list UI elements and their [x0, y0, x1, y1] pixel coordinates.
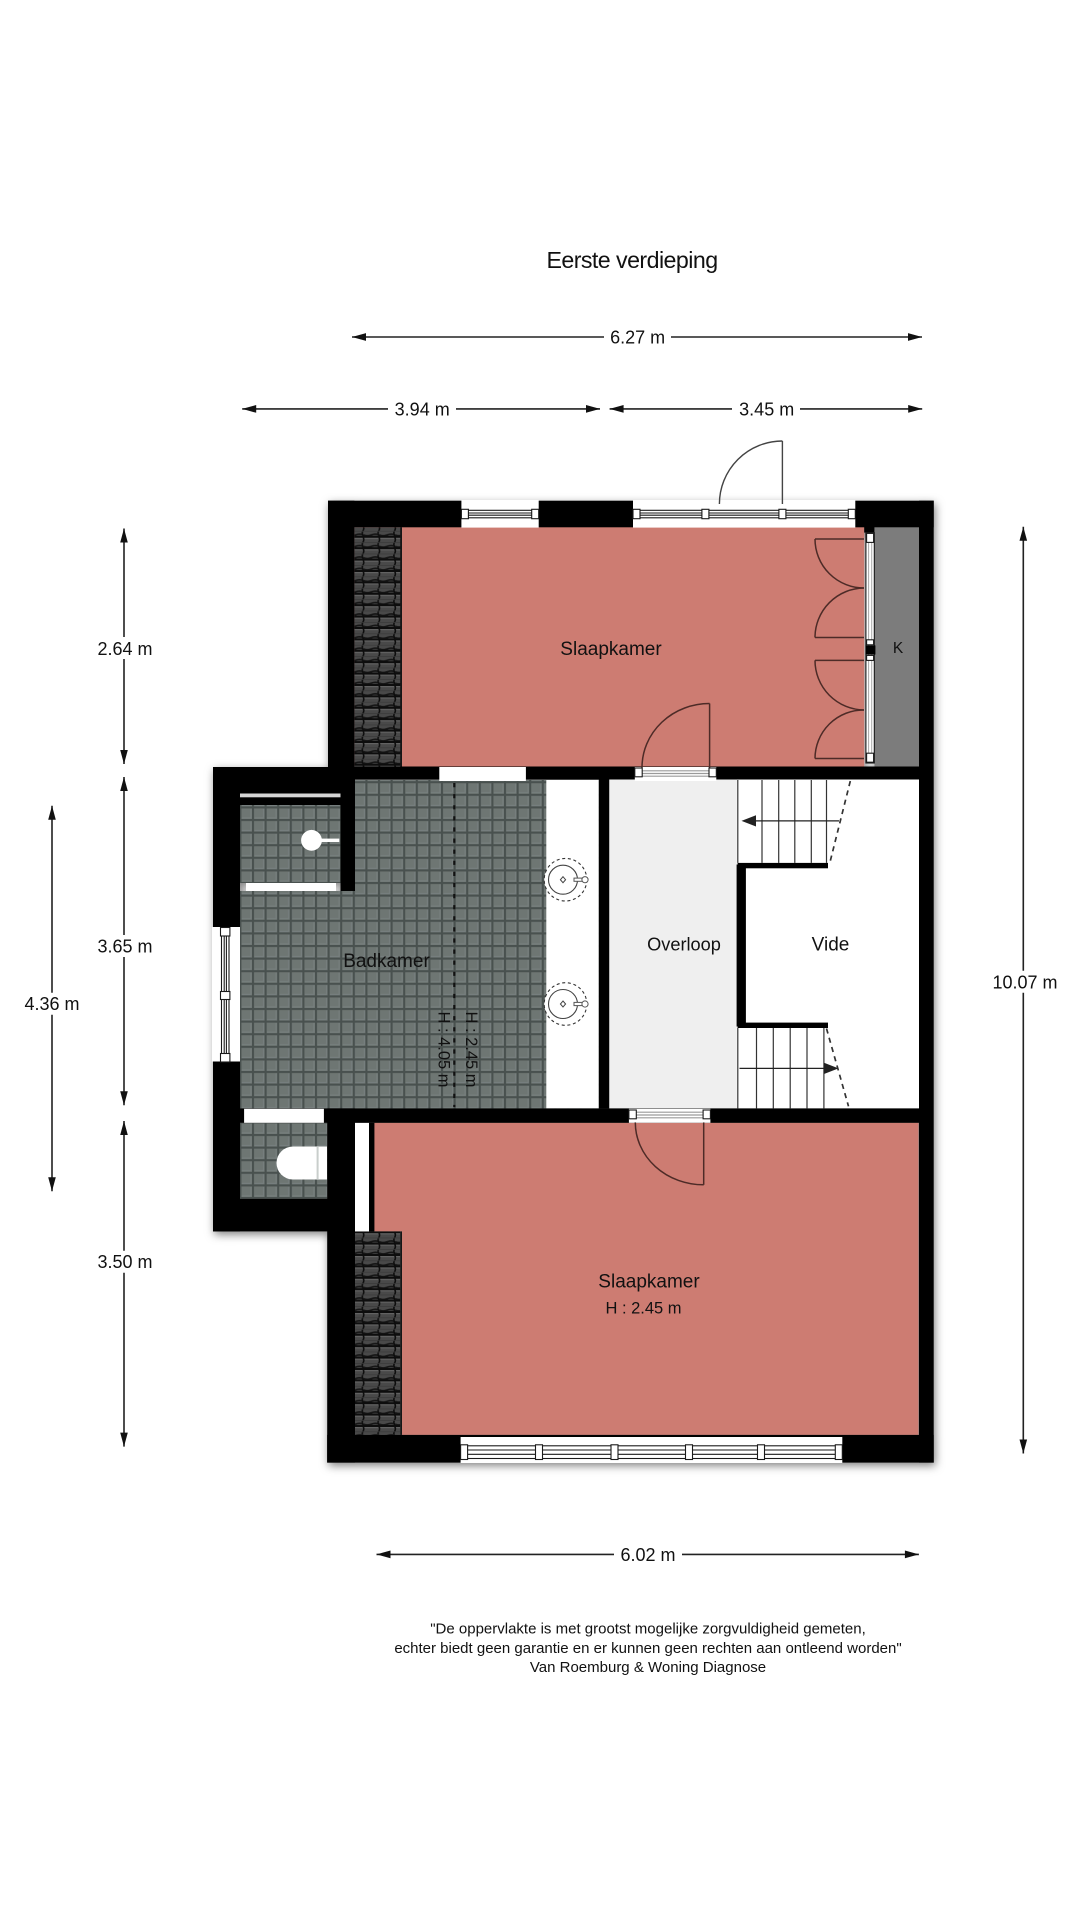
svg-text:Eerste verdieping: Eerste verdieping [546, 247, 717, 273]
svg-text:6.27 m: 6.27 m [610, 328, 665, 348]
svg-text:3.94 m: 3.94 m [395, 399, 450, 419]
svg-text:Van Roemburg & Woning Diagnose: Van Roemburg & Woning Diagnose [530, 1659, 766, 1676]
svg-text:Slaapkamer: Slaapkamer [598, 1272, 700, 1293]
svg-text:Overloop: Overloop [647, 935, 721, 955]
svg-text:echter biedt geen garantie en: echter biedt geen garantie en er kunnen … [394, 1640, 901, 1657]
svg-text:4.36 m: 4.36 m [24, 994, 79, 1014]
svg-text:6.02 m: 6.02 m [620, 1545, 675, 1565]
svg-text:2.64 m: 2.64 m [97, 639, 152, 659]
svg-text:Vide: Vide [812, 935, 850, 956]
svg-text:Slaapkamer: Slaapkamer [560, 639, 662, 660]
svg-text:H : 4.05 m: H : 4.05 m [434, 1011, 452, 1087]
svg-text:3.50 m: 3.50 m [97, 1252, 152, 1272]
svg-text:Badkamer: Badkamer [343, 951, 430, 972]
svg-text:10.07 m: 10.07 m [992, 972, 1057, 992]
svg-text:K: K [893, 640, 904, 657]
svg-text:3.65 m: 3.65 m [97, 937, 152, 957]
svg-text:H : 2.45 m: H : 2.45 m [462, 1011, 480, 1087]
svg-text:"De oppervlakte is met grootst: "De oppervlakte is met grootst mogelijke… [430, 1621, 866, 1638]
svg-text:H : 2.45 m: H : 2.45 m [605, 1300, 681, 1318]
svg-text:3.45 m: 3.45 m [739, 399, 794, 419]
